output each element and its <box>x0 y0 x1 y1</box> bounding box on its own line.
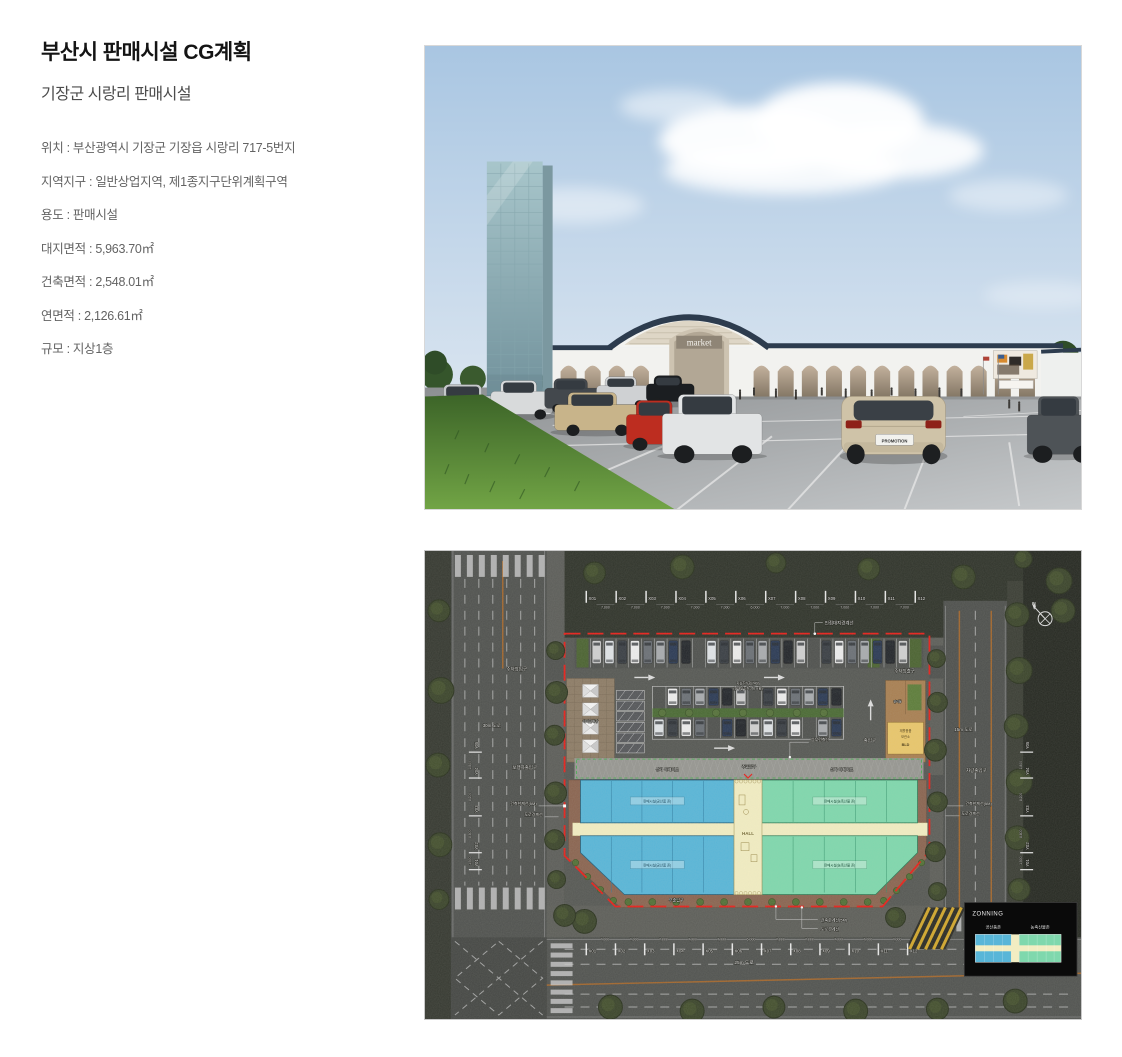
siteplan-svg: 지상주차장(74대) (장애인주차 3대 포함) 야외판매장 관리동 재활용품 … <box>425 551 1081 1019</box>
cg-rendering-image: market PR <box>424 45 1082 510</box>
zoning-title: ZONNING <box>972 911 1003 917</box>
detail-bldg-area: 건축면적 : 2,548.01㎡ <box>41 271 421 290</box>
detail-use: 용도 : 판매시설 <box>41 204 421 223</box>
page-title: 부산시 판매시설 CG계획 <box>41 36 421 66</box>
detail-floor-area: 연면적 : 2,126.61㎡ <box>41 305 421 324</box>
zoning-corridor-strip <box>975 945 1061 951</box>
license-plate-text: PROMOTION <box>882 438 908 443</box>
detail-scale: 규모 : 지상1층 <box>41 338 421 357</box>
page-subtitle: 기장군 시랑리 판매시설 <box>41 80 421 104</box>
project-info: 부산시 판매시설 CG계획 기장군 시랑리 판매시설 위치 : 부산광역시 기장… <box>41 36 421 372</box>
car-beige-sedan: PROMOTION <box>840 396 948 464</box>
rendering-svg: market PR <box>425 46 1081 509</box>
market-sign: market <box>687 338 712 348</box>
detail-district: 지역지구 : 일반상업지역, 제1종지구단위계획구역 <box>41 171 421 190</box>
zoning-legend: ZONNING 공산품존 농축산물존 <box>964 902 1077 976</box>
glass-tower <box>478 162 562 407</box>
zoning-item-blue-label: 공산품존 <box>986 923 1002 929</box>
detail-location: 위치 : 부산광역시 기장군 기장읍 시랑리 717-5번지 <box>41 137 421 156</box>
zoning-item-green-label: 농축산물존 <box>1031 923 1050 929</box>
detail-site-area: 대지면적 : 5,963.70㎡ <box>41 238 421 257</box>
site-plan-drawing: 지상주차장(74대) (장애인주차 3대 포함) 야외판매장 관리동 재활용품 … <box>424 550 1082 1020</box>
page: { "header": { "title": "부산시 판매시설 CG계획", … <box>0 0 1122 1057</box>
